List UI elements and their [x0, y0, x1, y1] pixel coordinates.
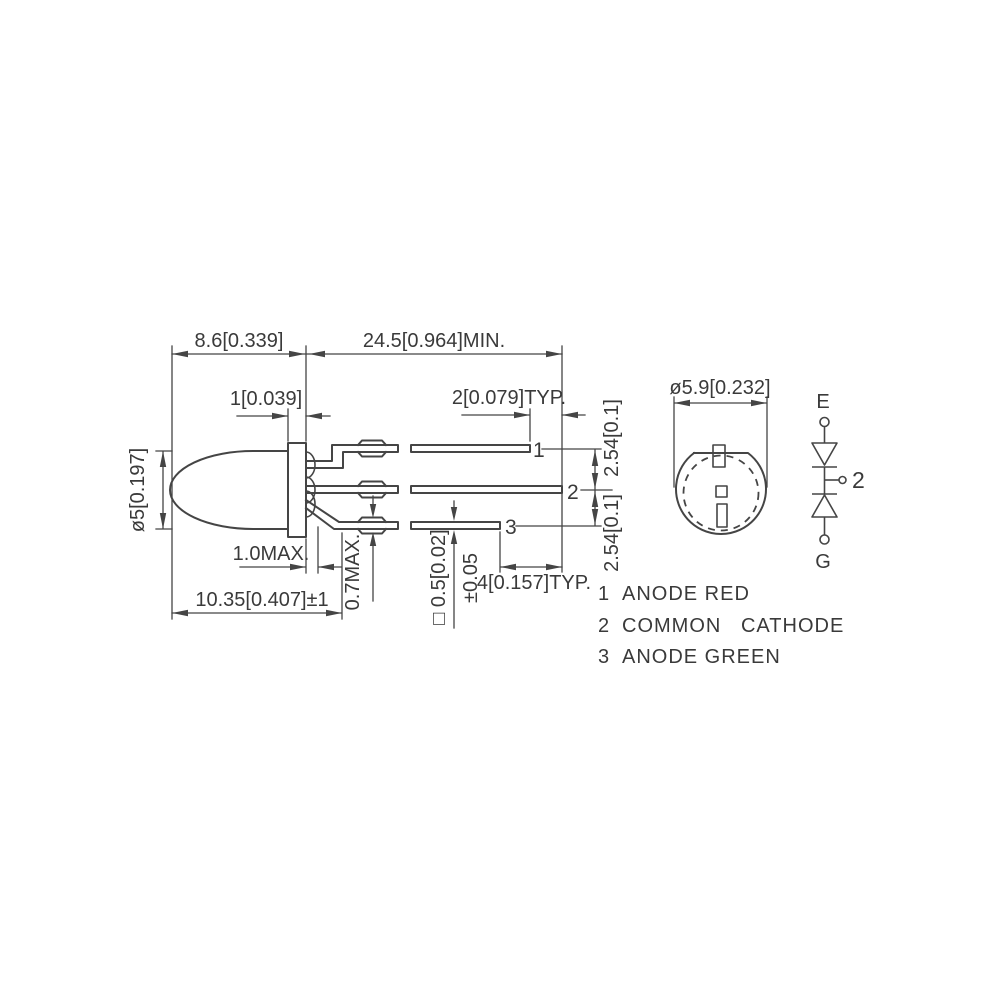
lead-2: [306, 486, 398, 493]
led-technical-drawing: 1 2 3 8.6[0.339] 24.5[0.964]MIN. 1[0.039…: [0, 0, 1000, 1000]
lead-3-tip-segment: [411, 522, 500, 529]
dim-lead-section: □ 0.5[0.02] ±0.05: [428, 501, 482, 628]
legend-row-1: 1 ANODE RED: [598, 583, 750, 605]
lead-1: [306, 445, 398, 468]
dim-tip-stagger: 2[0.079]TYP.: [452, 387, 585, 441]
dim-standoff: 1.0MAX.: [233, 527, 341, 573]
lead-1-crimp: [358, 441, 386, 457]
dim-line: [237, 409, 330, 441]
dim-arrowheads: [451, 507, 457, 544]
lead-cross-sections: [713, 445, 727, 527]
lead-1-tip-segment: [411, 445, 530, 452]
dim-pitch-lower-text: 2.54[0.1]: [601, 494, 623, 572]
legend-pin-label: ANODE GREEN: [622, 646, 781, 668]
diode-green-triangle-icon: [812, 495, 837, 517]
schematic-symbol: E 2 G: [812, 391, 865, 573]
led-flange: [288, 443, 306, 537]
dim-body-diameter: ø5[0.197]: [127, 448, 172, 533]
dim-tip-stagger-text: 2[0.079]TYP.: [452, 387, 566, 409]
dim-tip-span-text: 4[0.157]TYP.: [477, 572, 591, 594]
legend-pin-number: 1: [598, 583, 610, 605]
terminal-top-circle-icon: [820, 418, 829, 427]
legend-row-3: 3 ANODE GREEN: [598, 646, 781, 668]
legend-pin-label: ANODE RED: [622, 583, 750, 605]
dim-body-length: 8.6[0.339] 24.5[0.964]MIN.: [172, 330, 562, 357]
dim-flange-diameter: ø5.9[0.232]: [669, 377, 770, 487]
legend-pin-label: COMMON CATHODE: [622, 615, 844, 637]
lead-3-crimp: [358, 518, 386, 534]
legend-pin-number: 2: [598, 615, 610, 637]
dim-body-length-text: 8.6[0.339]: [195, 330, 284, 352]
terminal-bottom-circle-icon: [820, 535, 829, 544]
dim-lead-section-text: □ 0.5[0.02]: [428, 529, 450, 624]
dim-tip-span: 4[0.157]TYP.: [477, 532, 591, 594]
dim-flange-diameter-text: ø5.9[0.232]: [669, 377, 770, 399]
terminal-top-label: E: [816, 391, 829, 413]
lead-3: [306, 500, 398, 529]
dim-arrowheads: [272, 413, 322, 419]
legend-pin-number: 3: [598, 646, 610, 668]
dim-flange-thickness: 1[0.039]: [230, 388, 330, 441]
side-view: 1 2 3 8.6[0.339] 24.5[0.964]MIN. 1[0.039…: [127, 330, 623, 628]
dim-standoff-text: 1.0MAX.: [233, 543, 310, 565]
legend-row-2: 2 COMMON CATHODE: [598, 615, 844, 637]
top-view: ø5.9[0.232]: [669, 377, 770, 534]
led-body-outline: [170, 451, 288, 529]
dim-body-diameter-text: ø5[0.197]: [127, 448, 149, 533]
led-datasheet-drawing-page: 1 2 3 8.6[0.339] 24.5[0.964]MIN. 1[0.039…: [0, 0, 1000, 1000]
dim-flange-thickness-text: 1[0.039]: [230, 388, 302, 410]
dim-arrowheads: [370, 504, 376, 546]
dim-crimp-thickness-text: 0.7MAX.: [342, 534, 364, 611]
dim-crimp-thickness: 0.7MAX.: [342, 496, 376, 610]
dim-arrowheads: [592, 450, 598, 525]
lead-2-number: 2: [567, 481, 579, 504]
dim-lead-length-text: 24.5[0.964]MIN.: [363, 330, 505, 352]
common-tap-circle-icon: [839, 477, 846, 484]
lead-3-number: 3: [505, 516, 517, 539]
dim-line: [516, 449, 612, 526]
diode-red-triangle-icon: [812, 443, 837, 465]
lead-2-crimp: [358, 482, 386, 498]
dim-pitch-upper-text: 2.54[0.1]: [601, 399, 623, 477]
common-pin-label: 2: [852, 467, 865, 493]
lead-1-number: 1: [533, 439, 545, 462]
pin-legend: 1 ANODE RED 2 COMMON CATHODE 3 ANODE GRE…: [598, 583, 844, 668]
dim-arrowheads: [514, 412, 578, 418]
dim-overall-length-text: 10.35[0.407]±1: [195, 589, 328, 611]
flange-outline-flat-top: [676, 453, 766, 534]
terminal-bottom-label: G: [815, 551, 831, 573]
lead-2-tip-segment: [411, 486, 562, 493]
